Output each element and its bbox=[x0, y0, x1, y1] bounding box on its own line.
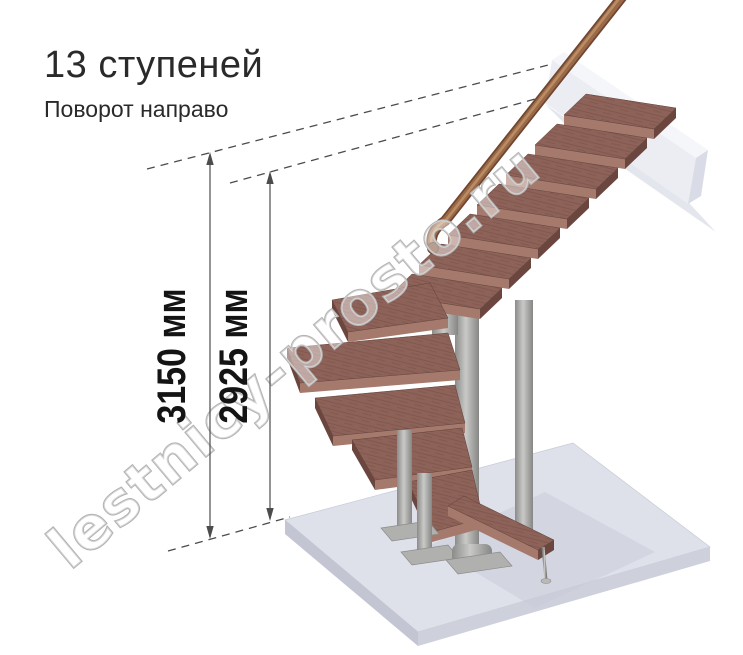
dimension-arrow-up-icon bbox=[266, 171, 273, 184]
baluster-foot bbox=[541, 579, 551, 584]
dimension-arrow-down-icon bbox=[206, 526, 213, 539]
page-title: 13 ступеней bbox=[44, 46, 263, 86]
support-column-rear bbox=[515, 300, 533, 540]
floor-level-dashed-line bbox=[168, 517, 290, 551]
dimension-label-height-to-top-step: 2925 мм bbox=[210, 288, 255, 423]
dimension-arrow-down-icon bbox=[266, 508, 273, 521]
support-post bbox=[417, 473, 432, 553]
support-post bbox=[397, 430, 412, 530]
floor-platform bbox=[285, 443, 710, 646]
dimension-label-total-height: 3150 мм bbox=[148, 288, 193, 423]
staircase-drawing-page: lestnicy-prosto.ru 3150 мм 2925 мм 13 ст… bbox=[0, 0, 743, 655]
page-subtitle: Поворот направо bbox=[44, 96, 228, 123]
